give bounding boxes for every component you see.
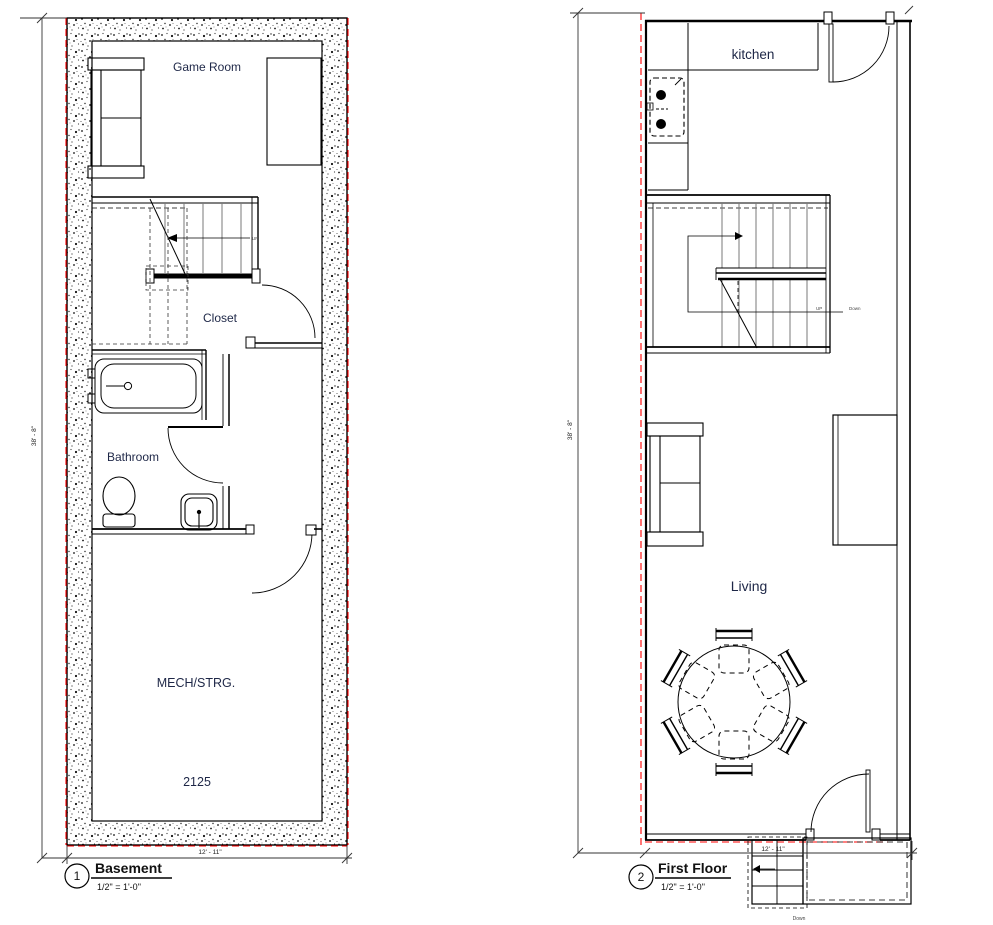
- basement-bathroom: Bathroom: [88, 350, 252, 534]
- dining-table-set: [661, 628, 807, 776]
- basement-stair-up-label: UP: [252, 236, 258, 241]
- deck: [803, 838, 911, 904]
- room-label-game-room: Game Room: [173, 60, 241, 74]
- kitchen-cooktop: [647, 78, 684, 136]
- toilet: [103, 477, 135, 527]
- kitchen-entry-door: [824, 6, 913, 82]
- first-floor-width-dimension: 12' - 11": [761, 846, 785, 853]
- first-floor-stair-down-label: Down: [849, 306, 861, 311]
- basement-title-block: 1 Basement 1/2" = 1'-0": [65, 860, 172, 892]
- room-label-mech: MECH/STRG.: [157, 676, 235, 690]
- living-sofa: [647, 423, 703, 546]
- plan-drawing: 38' - 8" 12' - 11" Game Room: [0, 0, 993, 925]
- first-floor-title-block: 2 First Floor 1/2" = 1'-0": [629, 860, 731, 892]
- basement-width-dimension: 12' - 11": [198, 849, 222, 856]
- room-label-bathroom: Bathroom: [107, 450, 159, 464]
- first-floor-boundary-lines: [641, 13, 888, 846]
- first-floor-height-dimension: 38' - 8": [567, 419, 574, 440]
- basement-area-number: 2125: [183, 775, 211, 789]
- basement-sofa: [88, 58, 144, 178]
- first-floor-stairs: UP Down: [646, 195, 861, 353]
- basement-game-table: [267, 58, 321, 165]
- room-label-living: Living: [731, 578, 768, 594]
- first-floor-dimensions: [570, 8, 917, 860]
- bathtub: [88, 359, 202, 413]
- basement-closet-door: [246, 285, 322, 348]
- bathroom-door: [168, 427, 223, 483]
- bathroom-sink: [181, 494, 217, 530]
- dining-chairs: [661, 628, 807, 776]
- first-floor-plan: kitchen: [567, 6, 917, 922]
- first-floor-callout-number: 2: [638, 870, 645, 884]
- basement-wall-fill: [67, 18, 347, 845]
- basement-title: Basement: [95, 860, 162, 876]
- first-floor-title: First Floor: [658, 860, 728, 876]
- basement-callout-number: 1: [74, 869, 81, 883]
- first-floor-scale: 1/2" = 1'-0": [661, 882, 705, 892]
- stoop-down-label: Down: [793, 916, 806, 922]
- living-console: [833, 415, 897, 545]
- room-label-kitchen: kitchen: [732, 47, 775, 62]
- basement-boundary-lines: [66, 18, 348, 846]
- first-floor-stair-up-label: UP: [816, 306, 822, 311]
- basement-scale: 1/2" = 1'-0": [97, 882, 141, 892]
- basement-wall-outer: [67, 18, 347, 845]
- front-door: [806, 770, 880, 840]
- floor-plan-sheet: 38' - 8" 12' - 11" Game Room: [0, 0, 993, 925]
- basement-mech-door: [246, 525, 322, 593]
- room-label-closet: Closet: [203, 311, 238, 325]
- basement-plan: 38' - 8" 12' - 11" Game Room: [20, 13, 352, 892]
- basement-wall-inner: [92, 41, 322, 821]
- basement-height-dimension: 38' - 8": [31, 425, 38, 446]
